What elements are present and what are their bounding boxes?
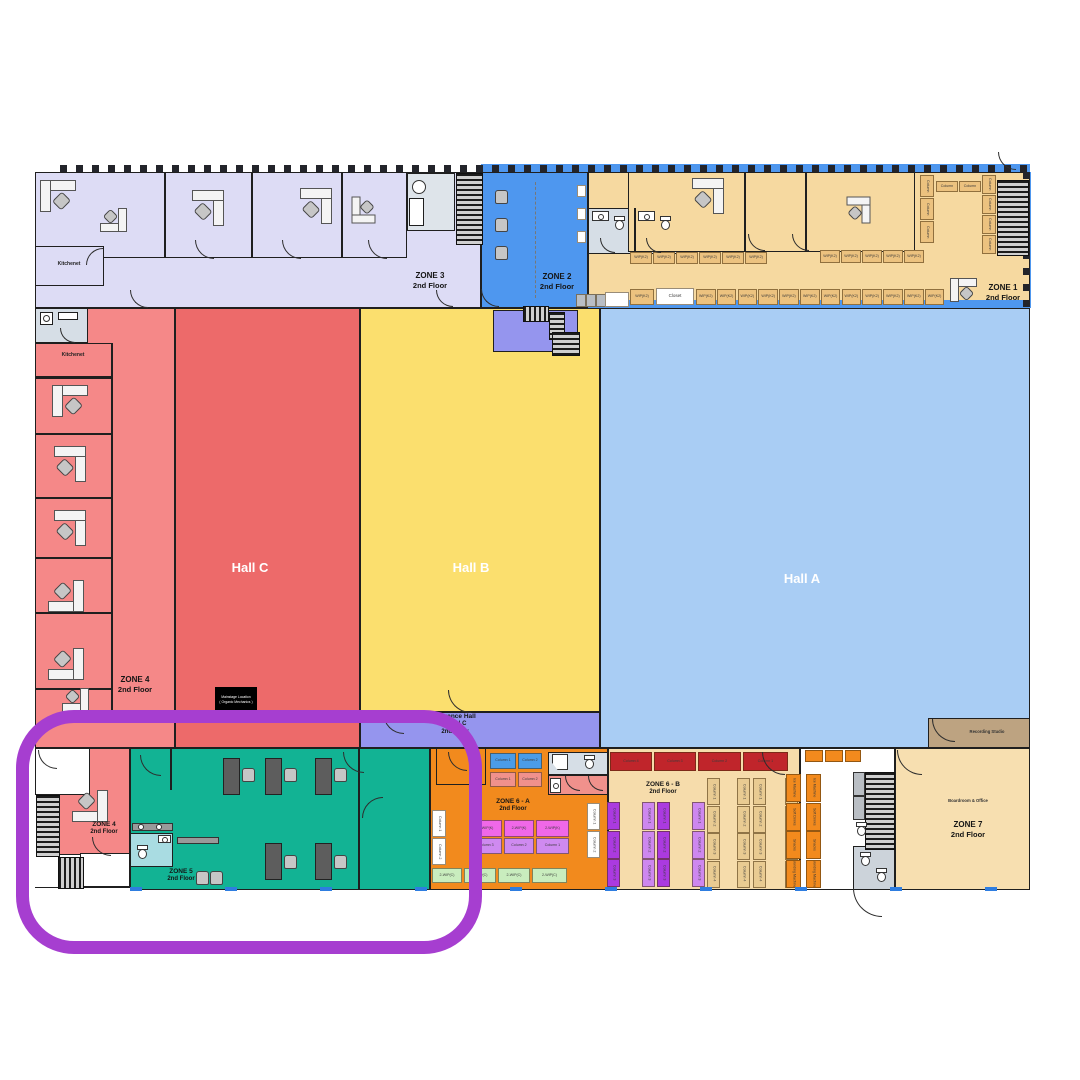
cell-label: Column 2 xyxy=(522,778,537,782)
zone3-label: ZONE 3 2nd Floor xyxy=(390,271,470,291)
cell-label: Column 2 xyxy=(758,811,762,826)
cell-label: Column 3 xyxy=(662,865,666,880)
storage-cell: WIP(K2) xyxy=(841,250,861,263)
storage-cell: Column 3 xyxy=(654,752,696,771)
cell-label: Snacks xyxy=(812,839,816,851)
cell-label: Column 2 xyxy=(612,837,616,852)
zone4-mid-label: ZONE 4 2nd Floor xyxy=(95,675,175,695)
cell-label: WIP(K2) xyxy=(680,256,694,260)
cell-label: Column 2 xyxy=(697,837,701,852)
desk-icon xyxy=(300,188,332,224)
storage-cell: WIP(K2) xyxy=(821,289,841,305)
door-arc-icon xyxy=(853,888,882,917)
cell-label: Column 2 xyxy=(662,837,666,852)
hall-c-label: Hall C xyxy=(210,560,290,575)
storage-cell: Column 2 xyxy=(692,831,705,859)
cell-label: Soft Drinks xyxy=(812,808,816,826)
desk-icon xyxy=(352,197,376,224)
storage-cell: WIP(K2) xyxy=(862,289,882,305)
storage-cell: Column 1 xyxy=(587,803,600,830)
cell-label: Column 2 xyxy=(712,760,727,764)
cell-label: Column xyxy=(964,185,976,189)
cell-label: Closet xyxy=(669,294,682,299)
cell-label: Column xyxy=(925,226,929,238)
storage-cell xyxy=(605,292,629,307)
storage-cell: Column 4 xyxy=(610,752,652,771)
storage-cell: Column 2 xyxy=(518,753,542,769)
cell-label: WIP(K2) xyxy=(865,295,879,299)
storage-cell: WIP(K2) xyxy=(904,250,924,263)
chair-icon xyxy=(65,689,81,705)
cabinet-icon xyxy=(853,772,865,796)
zone7-label: ZONE 7 2nd Floor xyxy=(923,820,1013,840)
cell-label: Column xyxy=(925,180,929,192)
chair-icon xyxy=(301,200,320,219)
storage-cell: 2-WIP(K) xyxy=(536,820,569,837)
storage-cell: Column 1 xyxy=(607,802,620,830)
stairs-icon xyxy=(997,180,1029,256)
chair-icon xyxy=(693,190,712,209)
washer-drum-icon xyxy=(43,315,50,322)
toilet-icon xyxy=(584,755,595,770)
cell-label: WIP(K2) xyxy=(823,255,837,259)
cell-label: Column 1 xyxy=(647,808,651,823)
storage-cell xyxy=(576,294,586,307)
toilet-icon xyxy=(876,868,887,883)
cell-label: WIP(K2) xyxy=(635,295,649,299)
cell-label: WIP(K2) xyxy=(741,295,755,299)
cell-label: Column 1 xyxy=(495,778,510,782)
hall-c xyxy=(175,308,360,748)
desk-icon xyxy=(100,208,127,232)
cell-label: Column 3 xyxy=(667,760,682,764)
storage-cell: Column 2 xyxy=(657,831,670,859)
storage-cell: Column 3 xyxy=(692,859,705,887)
sink-icon xyxy=(592,211,609,221)
storage-cell: WIP(K2) xyxy=(745,252,767,264)
storage-cell: Column 1 xyxy=(536,838,569,854)
cell-label: Column 2 xyxy=(522,759,537,763)
storage-cell: Vending Machine xyxy=(806,860,821,888)
cell-label: WIP(K2) xyxy=(907,295,921,299)
storage-cell: WIP(K2) xyxy=(699,252,721,264)
cell-label: Column xyxy=(987,218,991,230)
storage-cell: Column 1 xyxy=(707,778,720,805)
storage-cell: Column xyxy=(920,221,934,243)
storage-cell: Vending Machine xyxy=(786,860,801,888)
storage-cell: Column 1 xyxy=(657,802,670,830)
sink-icon xyxy=(550,778,561,793)
chair-icon xyxy=(359,199,375,215)
restroom-wall xyxy=(634,208,636,254)
cell-label: Column 2 xyxy=(742,811,746,826)
storage-cell: Column 1 xyxy=(642,802,655,830)
desk-icon xyxy=(48,580,84,612)
cell-label: Column 3 xyxy=(697,865,701,880)
cell-label: WIP(K2) xyxy=(803,295,817,299)
desk-icon xyxy=(847,197,871,224)
cell-label: Column 2 xyxy=(712,811,716,826)
chair-icon xyxy=(52,191,71,210)
chair-icon xyxy=(53,649,72,668)
storage-cell: WIP(K2) xyxy=(925,289,945,305)
cell-label: Column xyxy=(925,203,929,215)
cell-label: Vending Machine xyxy=(812,860,816,888)
cell-label: Soft Drinks xyxy=(792,808,796,826)
storage-cell: Column 3 xyxy=(737,833,750,860)
storage-cell: WIP(K2) xyxy=(653,252,675,264)
storage-cell: Soft Drinks xyxy=(786,803,801,831)
storage-cell: Column 1 xyxy=(692,802,705,830)
storage-cell: WIP(K2) xyxy=(738,289,758,305)
cell-label: 2-WIP(C) xyxy=(507,874,522,878)
chair-icon xyxy=(847,205,863,221)
storage-cell: Soft Drinks xyxy=(806,803,821,831)
toilet-icon xyxy=(860,852,871,867)
sink-icon xyxy=(638,211,655,221)
storage-cell: Column 3 xyxy=(707,833,720,860)
chair-icon xyxy=(55,458,74,477)
cell-label: Vending Machine xyxy=(792,860,796,888)
hall-b xyxy=(360,308,600,712)
zone6a-label: ZONE 6 - A 2nd Floor xyxy=(473,798,553,814)
storage-cell: Column 1 xyxy=(737,778,750,805)
floor-plan: Kitchenet ZONE 3 2nd Floor ZONE 2 2nd Fl… xyxy=(0,0,1080,1080)
storage-cell: 2-WIP(C) xyxy=(532,868,567,883)
cell-label: WIP(K2) xyxy=(634,256,648,260)
cell-label: Column 4 xyxy=(758,866,762,881)
storage-cell: Column 2 xyxy=(587,831,600,858)
chair-icon xyxy=(495,218,508,232)
desk-icon xyxy=(54,510,86,546)
hall-a xyxy=(600,308,1030,748)
cell-label: 2-WIP(C) xyxy=(542,874,557,878)
cell-label: 2-WIP(K) xyxy=(512,827,527,831)
cell-label: Column 2 xyxy=(647,837,651,852)
storage-cell: Column xyxy=(959,181,981,192)
storage-cell: Column xyxy=(920,198,934,220)
toilet-icon xyxy=(856,822,867,837)
zone6b-label: ZONE 6 - B 2nd Floor xyxy=(623,781,703,797)
storage-cell: WIP(K2) xyxy=(717,289,737,305)
stairs-icon xyxy=(865,772,895,850)
storage-cell: Column 2 xyxy=(753,806,766,833)
storage-cell: Snacks xyxy=(806,831,821,859)
storage-cell xyxy=(805,750,823,762)
chair-icon xyxy=(53,581,72,600)
printer-icon xyxy=(412,180,426,194)
storage-cell: Column 4 xyxy=(707,861,720,888)
storage-cell: WIP(K2) xyxy=(883,250,903,263)
storage-cell: Column 2 xyxy=(607,831,620,859)
desk-icon xyxy=(692,178,724,214)
storage-cell: Column xyxy=(936,181,958,192)
cell-label: WIP(K2) xyxy=(886,255,900,259)
storage-cell: Column 4 xyxy=(737,861,750,888)
storage-cell: Column 2 xyxy=(504,838,534,854)
storage-cell: WIP(K2) xyxy=(883,289,903,305)
cabinet-icon xyxy=(409,198,424,226)
window-ticks-top xyxy=(60,165,1030,172)
toilet-icon xyxy=(660,216,671,231)
desk-icon xyxy=(192,190,224,226)
storage-cell: Column xyxy=(982,175,996,194)
cell-label: Column 2 xyxy=(511,844,526,848)
zone4-room-wall xyxy=(35,433,112,435)
storage-cell xyxy=(577,208,586,220)
toilet-icon xyxy=(614,216,625,231)
cell-label: Column 4 xyxy=(742,866,746,881)
stairs-icon xyxy=(456,173,483,245)
storage-cell: Column 1 xyxy=(490,753,516,769)
cell-label: Column xyxy=(987,178,991,190)
storage-cell: Column 2 xyxy=(642,831,655,859)
storage-cell: WIP(K2) xyxy=(842,289,862,305)
storage-cell xyxy=(577,185,586,197)
cell-label: Column 1 xyxy=(495,759,510,763)
storage-cell: WIP(K2) xyxy=(779,289,799,305)
storage-cell: Column 3 xyxy=(657,859,670,887)
zone1-label: ZONE 1 2nd Floor xyxy=(963,283,1043,303)
storage-cell: Column 2 xyxy=(698,752,741,771)
storage-cell: Column 3 xyxy=(753,833,766,860)
cell-label: 2-WIP(K) xyxy=(545,827,560,831)
storage-cell xyxy=(586,294,596,307)
storage-cell: WIP(K2) xyxy=(676,252,698,264)
chair-icon xyxy=(495,190,508,204)
cell-label: Column 4 xyxy=(712,866,716,881)
storage-cell: WIP(K2) xyxy=(758,289,778,305)
cell-label: Column 4 xyxy=(623,760,638,764)
storage-cell: 2-WIP(K) xyxy=(504,820,534,837)
storage-cell: WIP(K2) xyxy=(800,289,820,305)
cell-label: Column xyxy=(987,238,991,250)
cell-label: Column 3 xyxy=(612,865,616,880)
storage-cell xyxy=(845,750,861,762)
zone4-room-wall xyxy=(111,343,113,712)
storage-cell: Column 2 xyxy=(737,806,750,833)
storage-cell: Column 1 xyxy=(753,778,766,805)
cell-label: Column 3 xyxy=(647,865,651,880)
zone4-room-wall xyxy=(35,377,112,379)
shelf-icon xyxy=(58,312,78,320)
desk-icon xyxy=(54,446,86,482)
cell-label: Column xyxy=(987,198,991,210)
storage-cell: Column xyxy=(982,195,996,214)
kitchenet-left-label: Kitchenet xyxy=(40,352,106,358)
cell-label: Snacks xyxy=(792,839,796,851)
desk-icon xyxy=(52,385,88,417)
storage-cell: Snacks xyxy=(786,831,801,859)
desk-icon xyxy=(62,688,89,712)
storage-cell: WIP(K2) xyxy=(630,252,652,264)
cell-label: Ice Machine xyxy=(792,778,796,797)
cell-label: Column xyxy=(941,185,953,189)
cell-label: WIP(K2) xyxy=(844,255,858,259)
cell-label: Column 1 xyxy=(697,808,701,823)
storage-cell: WIP(K2) xyxy=(904,289,924,305)
kitchenet-room-left xyxy=(35,343,112,377)
cell-label: Column 3 xyxy=(742,839,746,854)
boardroom-label: Boardroom & Office xyxy=(923,798,1013,803)
cell-label: Column 1 xyxy=(742,784,746,799)
zone4-room-wall xyxy=(35,557,112,559)
storage-cell: Ice Machine xyxy=(786,774,801,802)
desk-icon xyxy=(48,648,84,680)
cell-label: Column 1 xyxy=(612,808,616,823)
cell-label: Ice Machine xyxy=(812,778,816,797)
storage-cell: Column 4 xyxy=(753,861,766,888)
storage-cell: Closet xyxy=(656,288,694,305)
storage-cell: Column 1 xyxy=(490,772,516,787)
cell-label: WIP(K2) xyxy=(657,256,671,260)
storage-cell: WIP(K2) xyxy=(820,250,840,263)
chair-icon xyxy=(55,522,74,541)
hall-b-label: Hall B xyxy=(431,560,511,575)
cell-label: WIP(K2) xyxy=(824,295,838,299)
cell-label: Column 1 xyxy=(758,784,762,799)
cell-label: WIP(K2) xyxy=(928,295,942,299)
chair-icon xyxy=(495,246,508,260)
storage-cell: Column xyxy=(982,235,996,254)
cell-label: WIP(K2) xyxy=(886,295,900,299)
storage-cell: 2-WIP(C) xyxy=(498,868,530,883)
stage-box-line2: ( Organic Mechanics ) xyxy=(215,700,257,705)
cell-label: WIP(K2) xyxy=(845,295,859,299)
storage-cell: WIP(K2) xyxy=(862,250,882,263)
storage-cell: Column 3 xyxy=(642,859,655,887)
cell-label: WIP(K2) xyxy=(761,295,775,299)
cell-label: Column 1 xyxy=(712,784,716,799)
stairs-icon xyxy=(552,332,580,356)
cell-label: WIP(K2) xyxy=(699,295,713,299)
chair-icon xyxy=(64,396,83,415)
zone4-room-wall xyxy=(35,497,112,499)
storage-cell: Column 3 xyxy=(607,859,620,887)
cell-label: WIP(K2) xyxy=(782,295,796,299)
cell-label: WIP(K2) xyxy=(907,255,921,259)
cell-label: Column 1 xyxy=(592,809,596,824)
zone4-room-wall xyxy=(35,612,112,614)
zone2-label: ZONE 2 2nd Floor xyxy=(517,272,597,292)
cell-label: Column 3 xyxy=(758,839,762,854)
cell-label: WIP(K2) xyxy=(720,295,734,299)
storage-cell: Column xyxy=(982,215,996,234)
desk-icon xyxy=(40,180,76,212)
storage-cell: WIP(K2) xyxy=(630,289,654,305)
storage-cell: WIP(K2) xyxy=(696,289,716,305)
cell-label: Column 1 xyxy=(662,808,666,823)
cabinet-icon xyxy=(853,796,865,820)
storage-cell: Column xyxy=(920,175,934,197)
storage-cell: Column 2 xyxy=(707,806,720,833)
storage-cell: Ice Machine xyxy=(806,774,821,802)
highlight-ring xyxy=(16,710,482,954)
cell-label: WIP(K2) xyxy=(726,256,740,260)
storage-cell: Column 2 xyxy=(518,772,542,787)
chair-icon xyxy=(103,209,119,225)
recording-studio-label: Recording Studio xyxy=(952,729,1022,734)
storage-cell xyxy=(577,231,586,243)
cell-label: Column 1 xyxy=(545,844,560,848)
chair-icon xyxy=(193,202,212,221)
cell-label: Column 3 xyxy=(712,839,716,854)
cell-label: WIP(K2) xyxy=(703,256,717,260)
cell-label: WIP(K2) xyxy=(865,255,879,259)
storage-cell: WIP(K2) xyxy=(722,252,744,264)
storage-cell xyxy=(825,750,843,762)
stairs-icon xyxy=(523,306,549,322)
cell-label: Column 2 xyxy=(592,837,596,852)
cell-label: WIP(K2) xyxy=(749,256,763,260)
hall-a-label: Hall A xyxy=(762,571,842,586)
